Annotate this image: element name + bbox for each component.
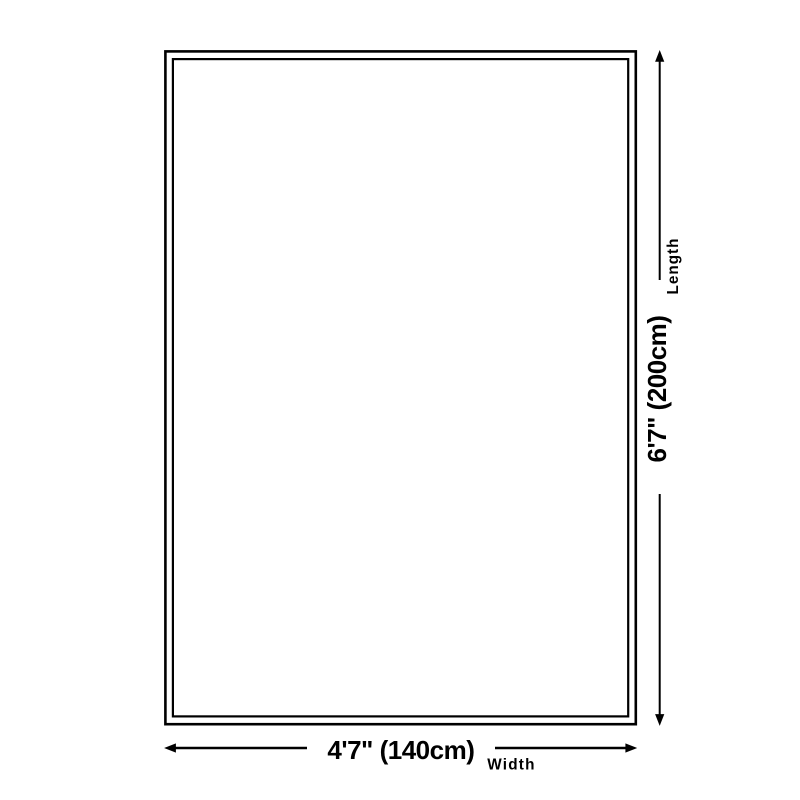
svg-text:Width: Width xyxy=(487,756,535,773)
svg-text:4'7" (140cm): 4'7" (140cm) xyxy=(327,735,474,765)
svg-text:Length: Length xyxy=(665,238,682,295)
svg-text:6'7" (200cm): 6'7" (200cm) xyxy=(642,316,672,463)
